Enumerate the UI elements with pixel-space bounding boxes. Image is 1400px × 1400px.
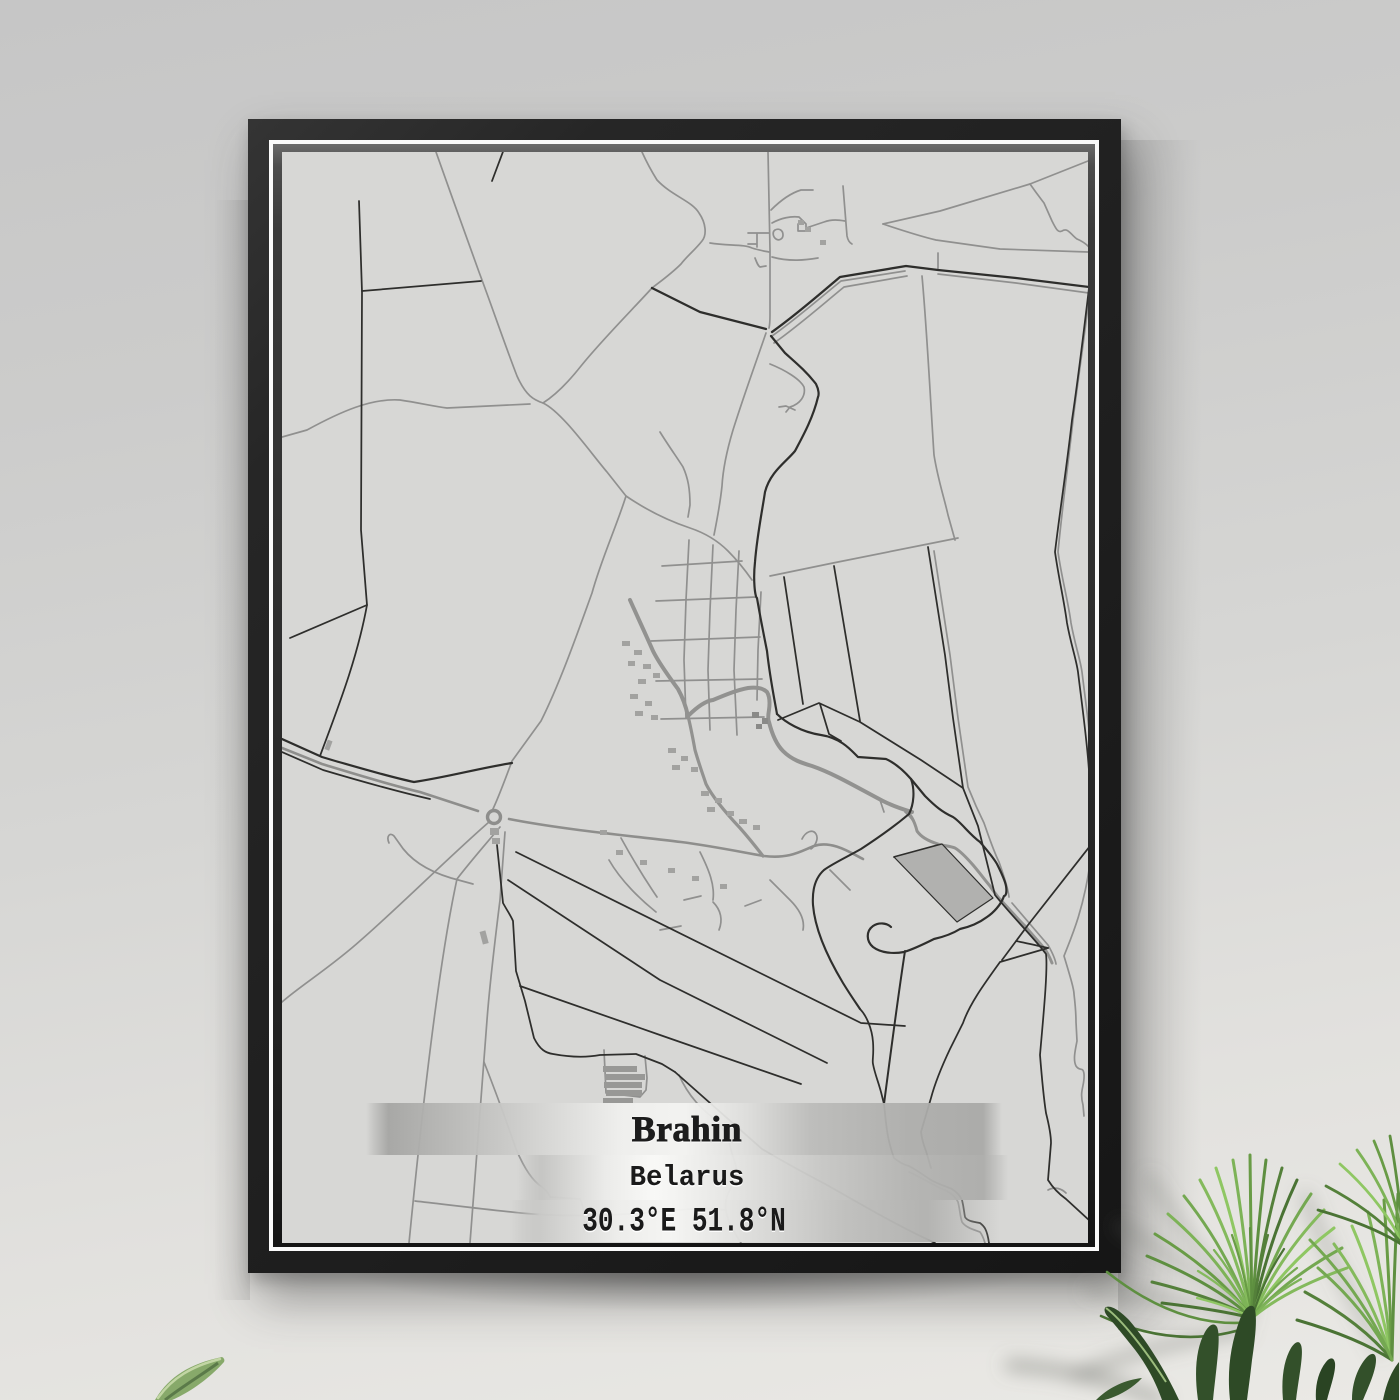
svg-text:Belarus: Belarus (630, 1162, 745, 1194)
svg-text:Brahin: Brahin (632, 1109, 742, 1149)
svg-text:30.3°E 51.8°N: 30.3°E 51.8°N (582, 1203, 786, 1241)
